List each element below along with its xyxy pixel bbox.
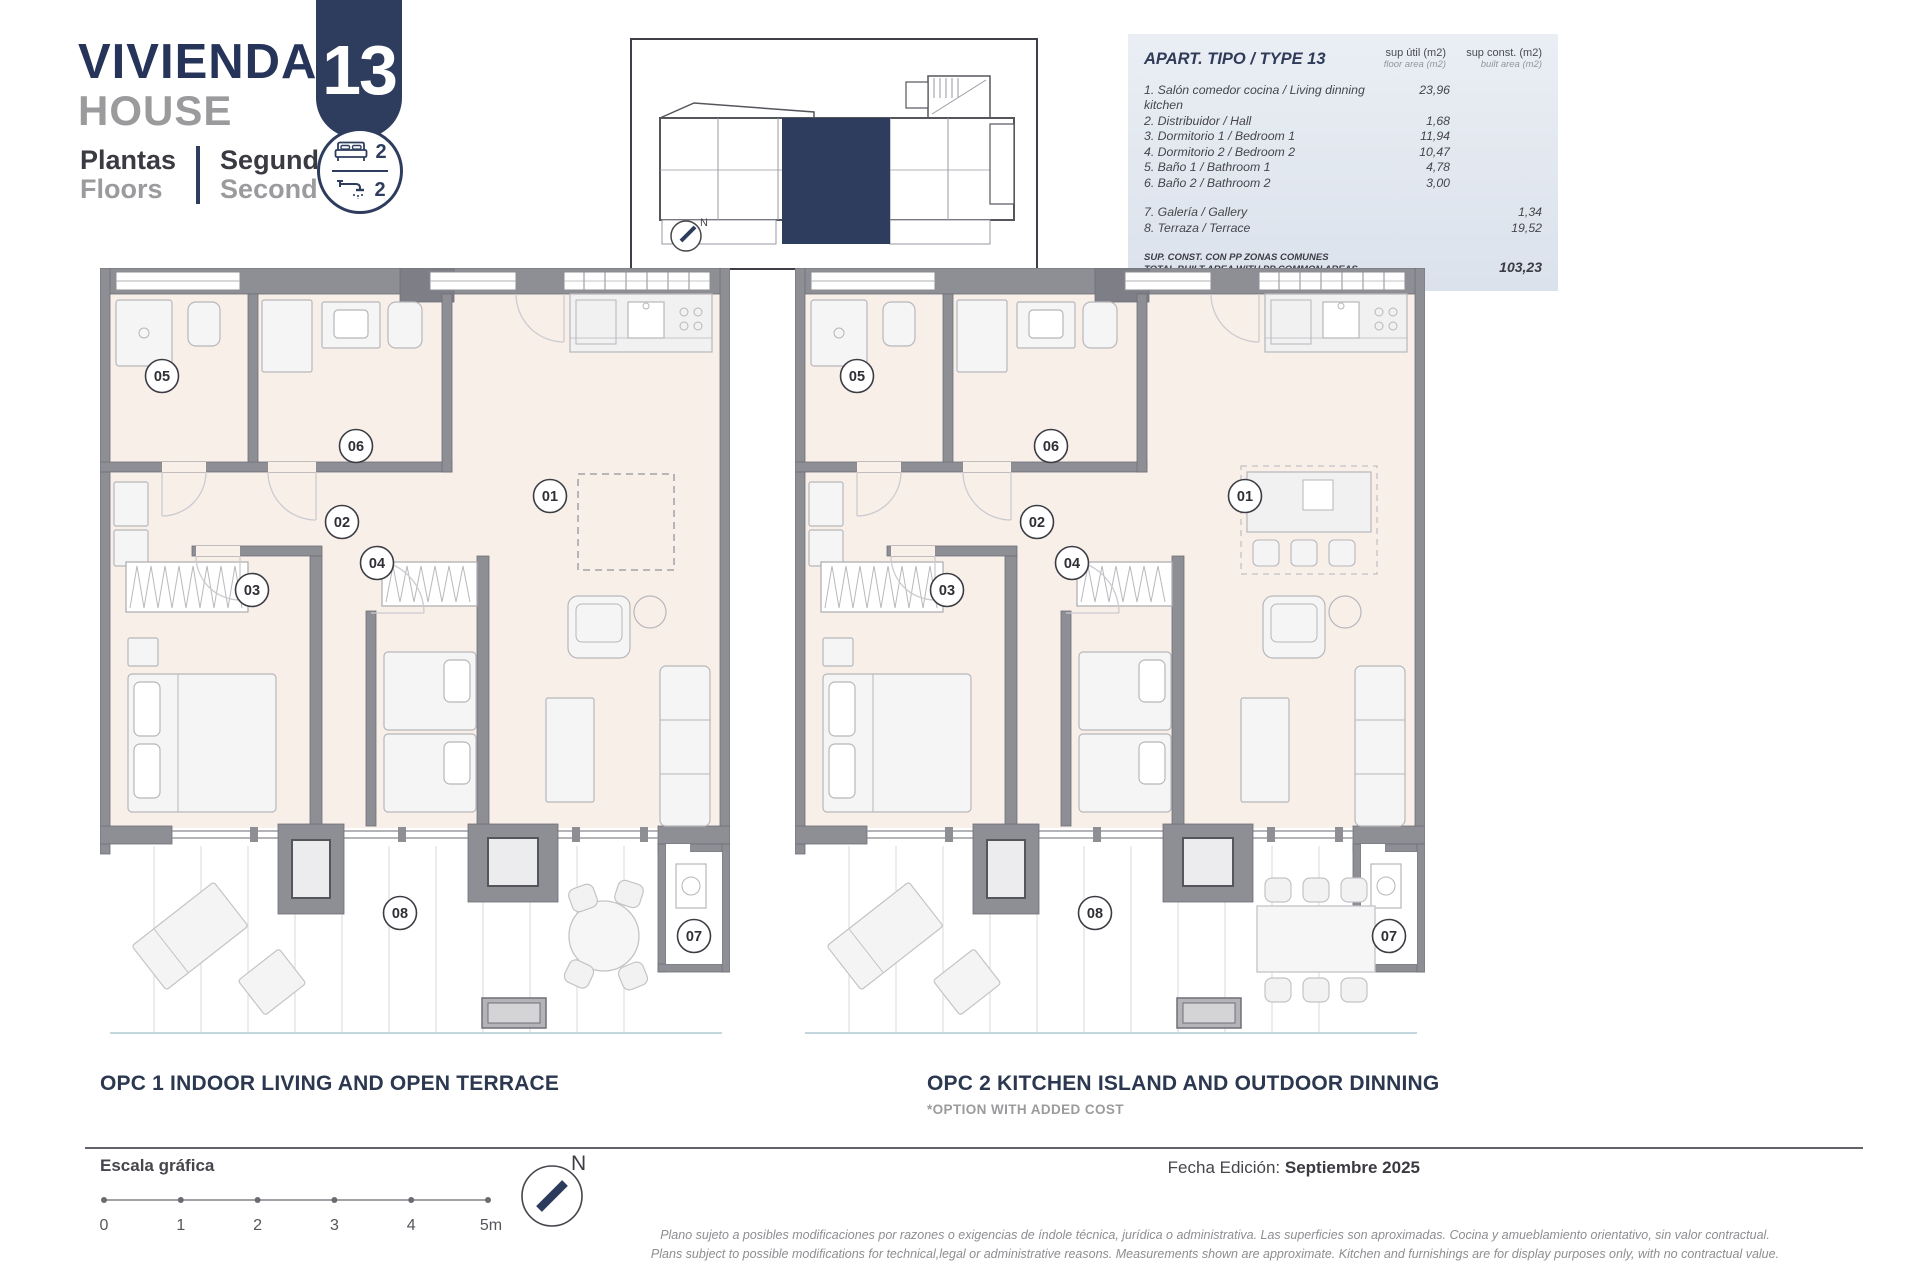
north-label: N	[571, 1152, 586, 1175]
total-label-es: SUP. CONST. CON PP ZONAS COMUNES	[1144, 252, 1450, 264]
area-table-title: APART. TIPO / TYPE 13	[1144, 47, 1360, 69]
bedrooms-count: 2	[375, 141, 386, 164]
svg-text:1: 1	[176, 1217, 185, 1234]
svg-text:01: 01	[542, 489, 558, 505]
area-table-row: 1. Salón comedor cocina / Living dinning…	[1144, 83, 1542, 114]
floorplan-opc1: 0102030405060708	[100, 268, 730, 1040]
area-table-row: 3. Dormitorio 1 / Bedroom 111,94	[1144, 129, 1542, 145]
area-table-row: 5. Baño 1 / Bathroom 14,78	[1144, 160, 1542, 176]
svg-text:0: 0	[100, 1217, 109, 1234]
area-table-row: 6. Baño 2 / Bathroom 23,00	[1144, 176, 1542, 192]
title-en: HOUSE	[78, 90, 317, 133]
shower-icon	[334, 177, 368, 203]
svg-text:06: 06	[1043, 439, 1059, 455]
unit-number: 13	[322, 30, 396, 110]
key-plan: N	[630, 38, 1038, 270]
total-value: 103,23	[1450, 259, 1542, 275]
caption-opc1: OPC 1 INDOOR LIVING AND OPEN TERRACE	[100, 1072, 559, 1096]
area-table: APART. TIPO / TYPE 13 sup útil (m2) floo…	[1128, 34, 1558, 291]
svg-text:05: 05	[849, 369, 865, 385]
svg-text:01: 01	[1237, 489, 1253, 505]
svg-text:02: 02	[1029, 515, 1045, 531]
column-built-area: sup const. (m2) built area (m2)	[1446, 47, 1542, 71]
subcaption-opc2: *OPTION WITH ADDED COST	[927, 1102, 1124, 1117]
disclaimer-en: Plans subject to possible modifications …	[560, 1245, 1870, 1264]
svg-text:07: 07	[1381, 929, 1397, 945]
edition-date: Fecha Edición: Septiembre 2025	[1000, 1158, 1420, 1178]
svg-text:N: N	[700, 217, 708, 229]
key-plan-drawing: N	[632, 40, 1035, 267]
svg-text:3: 3	[330, 1217, 339, 1234]
svg-text:08: 08	[392, 906, 408, 922]
floors-label-en: Floors	[80, 175, 176, 204]
disclaimer-es: Plano sujeto a posibles modificaciones p…	[560, 1226, 1870, 1245]
svg-text:05: 05	[154, 369, 170, 385]
floorplan-drawing-opc2: 0102030405060708	[795, 268, 1425, 1040]
svg-text:04: 04	[369, 556, 385, 572]
svg-text:07: 07	[686, 929, 702, 945]
area-table-row: 7. Galería / Gallery1,34	[1144, 205, 1542, 221]
unit-number-tab: 13	[316, 0, 402, 138]
area-table-row: 2. Distribuidor / Hall1,68	[1144, 114, 1542, 130]
floorplan-opc2: 0102030405060708	[795, 268, 1425, 1040]
svg-text:08: 08	[1087, 906, 1103, 922]
svg-text:03: 03	[244, 583, 260, 599]
floorplan-drawing-opc1: 0102030405060708	[100, 268, 730, 1040]
area-table-rows: 1. Salón comedor cocina / Living dinning…	[1144, 83, 1542, 237]
page-title: VIVIENDA HOUSE	[78, 38, 317, 133]
title-es: VIVIENDA	[78, 38, 317, 88]
svg-text:04: 04	[1064, 556, 1080, 572]
area-table-row: 8. Terraza / Terrace19,52	[1144, 221, 1542, 237]
floorplan-sheet: VIVIENDA HOUSE Plantas Floors Segunda Se…	[0, 0, 1920, 1280]
bathrooms-count: 2	[374, 179, 385, 202]
caption-opc2: OPC 2 KITCHEN ISLAND AND OUTDOOR DINNING	[927, 1072, 1439, 1096]
svg-text:02: 02	[334, 515, 350, 531]
divider	[196, 146, 200, 204]
svg-text:2: 2	[253, 1217, 262, 1234]
svg-text:5m: 5m	[480, 1217, 502, 1234]
scale-bar: 0 1 2 3 4 5m	[96, 1186, 526, 1246]
scale-label: Escala gráfica	[100, 1156, 214, 1176]
bed-icon	[333, 140, 369, 164]
svg-text:03: 03	[939, 583, 955, 599]
disclaimer: Plano sujeto a posibles modificaciones p…	[560, 1226, 1870, 1264]
edition-value: Septiembre 2025	[1285, 1158, 1420, 1177]
rooms-badge: 2 2	[317, 128, 403, 214]
floor-info: Plantas Floors Segunda Second	[80, 146, 334, 204]
edition-label: Fecha Edición:	[1168, 1158, 1280, 1177]
svg-text:06: 06	[348, 439, 364, 455]
column-floor-area: sup útil (m2) floor area (m2)	[1360, 47, 1446, 71]
svg-text:4: 4	[407, 1217, 416, 1234]
floors-label-es: Plantas	[80, 146, 176, 175]
area-table-row: 4. Dormitorio 2 / Bedroom 210,47	[1144, 145, 1542, 161]
footer-rule	[85, 1147, 1863, 1149]
